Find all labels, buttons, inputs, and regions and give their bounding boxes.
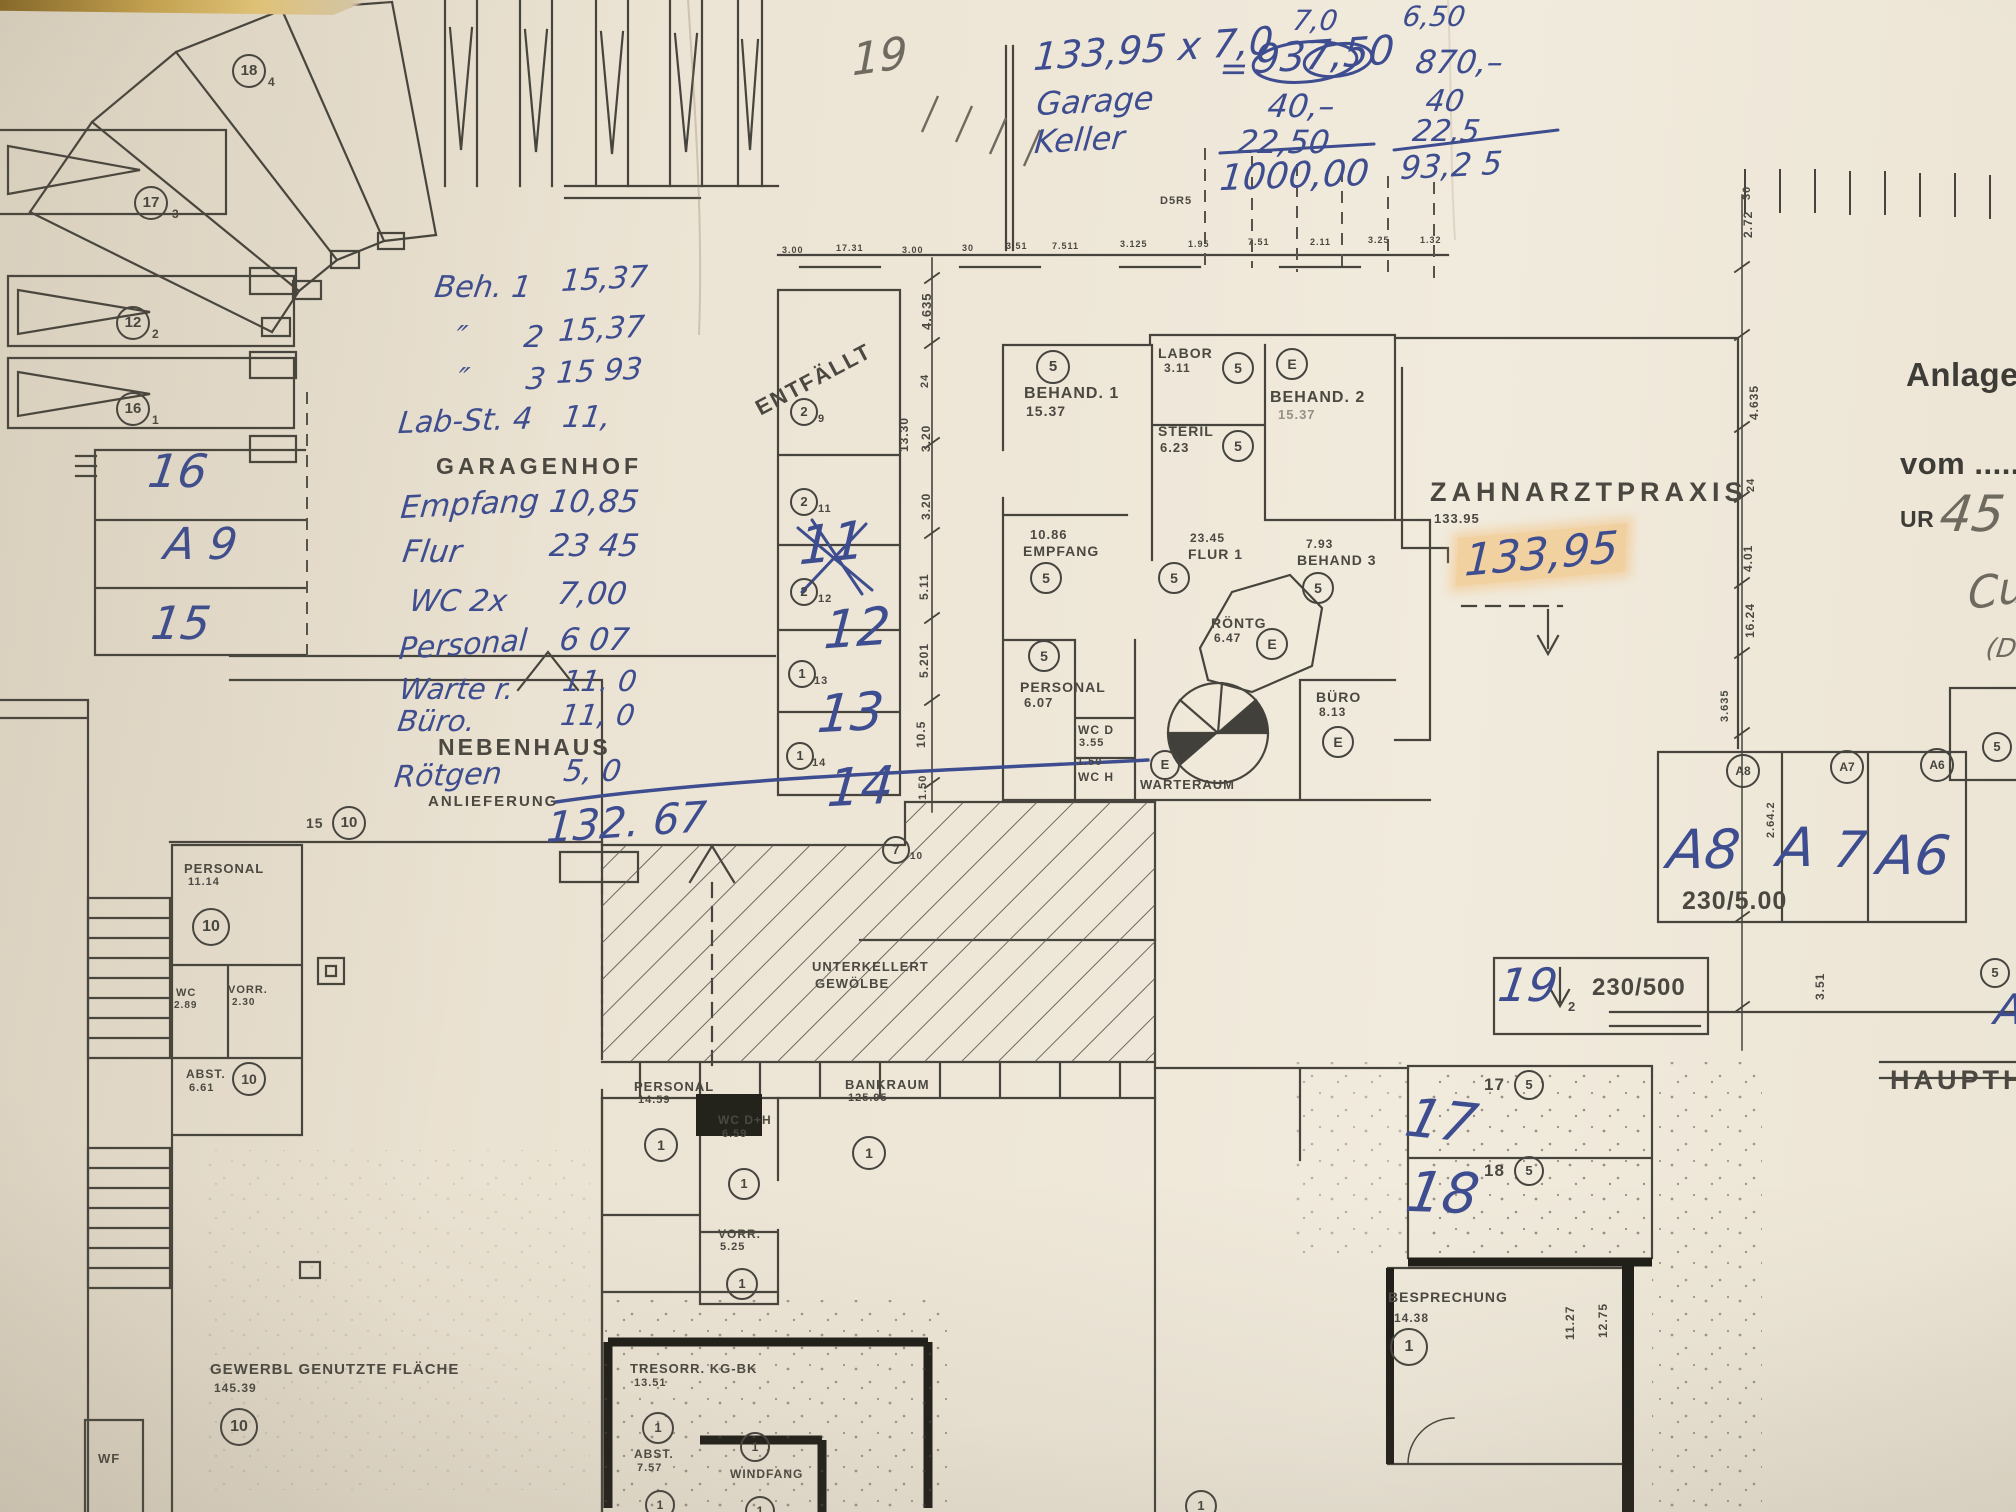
plan-text: 1.32 xyxy=(1420,236,1442,245)
circled-ref: 5 xyxy=(1980,958,2010,988)
col3-garage: 40 xyxy=(1424,86,1467,117)
plan-text: 3.00 xyxy=(902,246,924,255)
handwritten-note: 17 xyxy=(1400,1090,1482,1152)
circled-ref: 1 xyxy=(1185,1490,1217,1512)
plan-text: 1.50 xyxy=(1077,757,1102,768)
circled-ref: 7 xyxy=(882,836,910,864)
plan-text: 6.47 xyxy=(1214,632,1241,644)
plan-text: vom ...... xyxy=(1900,448,2016,480)
plan-text: 7.51 xyxy=(1248,238,1270,247)
handwritten-note: 15,37 xyxy=(560,262,649,298)
plan-text: RÖNTG xyxy=(1211,616,1267,631)
circled-ref: 17 xyxy=(134,186,168,220)
plan-text: WC H xyxy=(1078,771,1114,783)
handwritten-note: 13 xyxy=(815,685,886,743)
plan-text: 6.07 xyxy=(1024,696,1053,710)
circled-ref: 16 xyxy=(116,392,150,426)
handwritten-note: A xyxy=(1992,988,2016,1032)
plan-text: 13.51 xyxy=(634,1378,667,1389)
plan-text: PERSONAL xyxy=(184,862,264,876)
plan-text: 230/500 xyxy=(1592,976,1686,1001)
handwritten-note: A8 xyxy=(1664,822,1743,878)
plan-text: ZAHNARZTPRAXIS xyxy=(1430,478,1748,506)
circled-ref: 1 xyxy=(1390,1328,1428,1366)
handwritten-note: 16 xyxy=(145,448,210,496)
plan-text: 2.64.2 xyxy=(1766,801,1777,838)
circled-ref: 5 xyxy=(1222,430,1254,462)
plan-text: 2.30 xyxy=(232,998,255,1008)
plan-text: EMPFANG xyxy=(1023,544,1099,559)
calc-keller: Keller xyxy=(1033,121,1126,159)
calc-result: 937,50 xyxy=(1253,30,1396,82)
highlighted-area: 133,95 xyxy=(1455,523,1627,586)
plan-text: 15 xyxy=(306,816,324,831)
handwritten-note: 23 45 xyxy=(547,530,640,562)
plan-text: 5.25 xyxy=(720,1242,745,1253)
plan-text: 4 xyxy=(268,76,276,88)
handwritten-note: 5, 0 xyxy=(562,756,624,787)
plan-text: 3.00 xyxy=(782,246,804,255)
plan-text: HAUPTH xyxy=(1890,1066,2016,1094)
plan-text: TRESORR. KG-BK xyxy=(630,1362,757,1376)
circled-ref: 2 xyxy=(790,488,818,516)
circled-ref: E xyxy=(1256,628,1288,660)
col3-total: 93,2 5 xyxy=(1399,147,1504,186)
handwritten-note: Warte r. xyxy=(398,674,516,704)
handwritten-note: 12 xyxy=(822,599,892,658)
plan-text: 13.30 xyxy=(898,417,910,452)
handwritten-note: A 9 xyxy=(162,522,241,568)
circled-ref: E xyxy=(1322,726,1354,758)
handwritten-note: 10,85 xyxy=(547,486,640,518)
plan-text: 2 xyxy=(1568,1000,1576,1014)
handwritten-note: (D xyxy=(1984,636,2016,663)
plan-text: 5.201 xyxy=(918,643,930,678)
circled-ref: 1 xyxy=(745,1496,775,1512)
circled-ref: 2 xyxy=(790,398,818,426)
plan-text: 8.13 xyxy=(1319,706,1346,718)
plan-text: VORR. xyxy=(228,985,268,996)
plan-text: 12 xyxy=(818,594,832,605)
plan-text: 14.59 xyxy=(638,1095,671,1106)
col3-rent: 870,– xyxy=(1413,46,1505,79)
handwritten-note: Cu xyxy=(1968,564,2016,618)
plan-text: 4.01 xyxy=(1742,545,1754,572)
plan-text: 9 xyxy=(818,414,825,425)
plan-text: 5.11 xyxy=(918,573,930,600)
plan-text: 3.20 xyxy=(920,493,932,520)
plan-text: 1.50 xyxy=(918,775,929,800)
plan-text: 3 xyxy=(172,208,180,220)
circled-ref: 1 xyxy=(645,1490,675,1512)
circled-ref: 5 xyxy=(1302,572,1334,604)
circled-ref: 10 xyxy=(192,908,230,946)
plan-text: GARAGENHOF xyxy=(436,455,642,479)
circled-ref: 5 xyxy=(1158,562,1190,594)
plan-text: 15.37 xyxy=(1278,408,1316,422)
plan-text: 3.20 xyxy=(920,425,932,452)
plan-text: 2.89 xyxy=(174,1001,197,1011)
plan-text: 18 xyxy=(1484,1162,1505,1180)
circled-ref: A8 xyxy=(1726,754,1760,788)
plan-text: 7.57 xyxy=(637,1463,662,1474)
handwritten-note: Beh. 1 xyxy=(433,272,534,303)
plan-text: 2.72 xyxy=(1742,211,1754,238)
circled-ref: 5 xyxy=(1222,352,1254,384)
handwritten-note: 15 93 xyxy=(555,354,644,390)
calc-garage-value: 40,– xyxy=(1265,90,1337,123)
handwritten-note: Rötgen xyxy=(393,758,504,793)
circled-ref: 1 xyxy=(726,1268,758,1300)
plan-text: WC D+H xyxy=(718,1114,772,1126)
plan-text: GEWÖLBE xyxy=(815,977,889,991)
circled-ref: 12 xyxy=(116,306,150,340)
plan-text: 14.38 xyxy=(1394,1312,1429,1324)
handwritten-note: Personal xyxy=(398,625,528,665)
handwritten-note: 132. 67 xyxy=(545,795,708,850)
circled-ref: 2 xyxy=(790,578,818,606)
handwritten-note: 18 xyxy=(1402,1164,1483,1224)
plan-text: ABST. xyxy=(186,1068,226,1080)
circled-ref: 1 xyxy=(788,660,816,688)
circled-ref: 10 xyxy=(220,1408,258,1446)
plan-text: 7.93 xyxy=(1306,538,1333,550)
plan-text: 3.125 xyxy=(1120,240,1148,249)
plan-text: 125.95 xyxy=(848,1093,888,1104)
plan-text: 14 xyxy=(812,758,826,769)
handwritten-note: A6 xyxy=(1874,828,1953,884)
handwritten-note: 15,37 xyxy=(557,312,646,348)
plan-text: BEHAND. 1 xyxy=(1024,386,1119,403)
plan-text: 12.75 xyxy=(1597,1303,1609,1338)
circled-ref: 5 xyxy=(1514,1070,1544,1100)
plan-text: 10 xyxy=(910,852,923,862)
plan-text: WINDFANG xyxy=(730,1468,803,1480)
col3-keller: 22,5 xyxy=(1411,116,1482,147)
circled-ref: 1 xyxy=(644,1128,678,1162)
circled-ref: 1 xyxy=(740,1432,770,1462)
handwritten-note: 7,00 xyxy=(555,578,629,610)
plan-text: 13 xyxy=(814,676,828,687)
plan-text: 10.86 xyxy=(1030,528,1068,542)
plan-text: 145.39 xyxy=(214,1382,257,1394)
circled-ref: 18 xyxy=(232,54,266,88)
circled-ref: 5 xyxy=(1030,562,1062,594)
plan-text: 11 xyxy=(818,504,832,515)
handwritten-note: 7 xyxy=(1831,824,1870,876)
plan-text: ANLIEFERUNG xyxy=(428,794,558,810)
plan-text: WC D xyxy=(1078,724,1114,736)
plan-text: 7.511 xyxy=(1052,242,1079,251)
plan-text: 15.37 xyxy=(1026,404,1066,419)
plan-text: 23.45 xyxy=(1190,532,1225,544)
plan-text: BEHAND 3 xyxy=(1297,553,1377,568)
handwritten-note: 6 07 xyxy=(557,624,631,656)
plan-text: D5R5 xyxy=(1160,196,1192,207)
plan-text: 3.51 xyxy=(1006,242,1028,251)
plan-text: FLUR 1 xyxy=(1188,547,1243,562)
handwritten-note: WC 2x xyxy=(408,586,509,617)
circled-ref: 1 xyxy=(642,1412,674,1444)
plan-text: 3.635 xyxy=(1720,689,1731,722)
col2-width: 7,0 xyxy=(1291,6,1340,35)
pencil-19: 19 xyxy=(852,30,907,84)
plan-text: 11.14 xyxy=(188,877,220,888)
floor-plan-photo: 133,95 x 7,0=937,50GarageKeller40,–22,50… xyxy=(0,0,2016,1512)
plan-text: WC xyxy=(176,988,196,999)
plan-text: LABOR xyxy=(1158,346,1213,361)
calc-total: 1000,00 xyxy=(1218,155,1371,198)
plan-text: 24 xyxy=(920,374,931,388)
col3-width: 6,50 xyxy=(1401,2,1467,31)
handwritten-note: Lab-St. 4 xyxy=(397,403,534,439)
handwritten-note: Büro. xyxy=(396,706,477,736)
plan-text: VORR. xyxy=(718,1228,761,1240)
circled-ref: 1 xyxy=(786,742,814,770)
plan-text: 1 xyxy=(152,414,160,426)
plan-text: 6.59 xyxy=(722,1129,747,1140)
circled-ref: 5 xyxy=(1982,732,2012,762)
circled-ref: 1 xyxy=(728,1168,760,1200)
plan-text: NEBENHAUS xyxy=(438,736,611,760)
handwritten-note: ″ 2 xyxy=(454,322,546,353)
plan-text: 10.5 xyxy=(915,721,927,748)
plan-text: 6.23 xyxy=(1160,441,1189,455)
calc-garage: Garage xyxy=(1035,82,1155,122)
handwritten-note: A xyxy=(1774,820,1819,876)
plan-text: Anlage xyxy=(1906,358,2016,392)
plan-text: 30 xyxy=(1742,186,1753,200)
circled-ref: E xyxy=(1150,750,1180,780)
plan-text: 2 xyxy=(152,328,160,340)
handwritten-note: 11, 0 xyxy=(559,700,637,730)
plan-text: BANKRAUM xyxy=(845,1078,930,1092)
plan-text: 4.635 xyxy=(920,292,934,330)
handwritten-note: 15 xyxy=(148,600,213,648)
circled-ref: 5 xyxy=(1028,640,1060,672)
plan-text: UNTERKELLERT xyxy=(812,960,929,974)
plan-text: WF xyxy=(98,1452,120,1466)
handwritten-note: Empfang xyxy=(399,485,540,525)
plan-text: PERSONAL xyxy=(1020,680,1106,695)
plan-text: WARTERAUM xyxy=(1140,778,1235,792)
plan-text: GEWERBL GENUTZTE FLÄCHE xyxy=(210,1362,459,1378)
plan-text: ABST. xyxy=(634,1448,674,1460)
handwritten-note: 45 xyxy=(1937,488,2008,540)
plan-text: 6.61 xyxy=(189,1083,214,1094)
plan-text: BESPRECHUNG xyxy=(1388,1290,1508,1305)
plan-text: 230/5.00 xyxy=(1682,888,1787,914)
plan-text: 4.635 xyxy=(1748,385,1760,420)
plan-text: 3.11 xyxy=(1164,362,1191,374)
calc-equals: = xyxy=(1217,52,1250,87)
plan-text: 16.24 xyxy=(1744,603,1756,638)
plan-text: BEHAND. 2 xyxy=(1270,390,1365,407)
handwritten-note: 14 xyxy=(825,759,896,817)
handwritten-note: 11 xyxy=(798,513,866,574)
plan-text: 1.95 xyxy=(1188,240,1210,249)
circled-ref: E xyxy=(1276,348,1308,380)
plan-text: 11.27 xyxy=(1564,1306,1576,1340)
circled-ref: 10 xyxy=(332,806,366,840)
plan-text: 133.95 xyxy=(1434,512,1480,526)
plan-text: 17 xyxy=(1484,1076,1505,1094)
plan-text: UR xyxy=(1900,508,1934,532)
plan-text: BÜRO xyxy=(1316,690,1361,705)
handwritten-note: 11, xyxy=(561,402,613,433)
plan-text: 3.55 xyxy=(1079,738,1104,749)
handwritten-note: 11. 0 xyxy=(561,666,639,696)
plan-text: 30 xyxy=(962,244,974,253)
circled-ref: 10 xyxy=(232,1062,266,1096)
circled-ref: A6 xyxy=(1920,748,1954,782)
handwritten-note: 19 xyxy=(1495,962,1560,1010)
circled-ref: 1 xyxy=(852,1136,886,1170)
label-layer: 133,95 x 7,0=937,50GarageKeller40,–22,50… xyxy=(0,0,2016,1512)
circled-ref: 5 xyxy=(1514,1156,1544,1186)
plan-text: STERIL xyxy=(1158,424,1214,439)
plan-text: 2.11 xyxy=(1310,238,1331,247)
plan-text: 17.31 xyxy=(836,244,864,253)
handwritten-note: ″ 3 xyxy=(456,364,548,395)
circled-ref: A7 xyxy=(1830,750,1864,784)
plan-text: 24 xyxy=(1746,478,1757,492)
handwritten-note: Flur xyxy=(400,536,463,568)
circled-ref: 5 xyxy=(1036,350,1070,384)
plan-text: 3.25 xyxy=(1368,236,1390,245)
plan-text: 3.51 xyxy=(1814,973,1826,1000)
plan-text: PERSONAL xyxy=(634,1080,714,1094)
